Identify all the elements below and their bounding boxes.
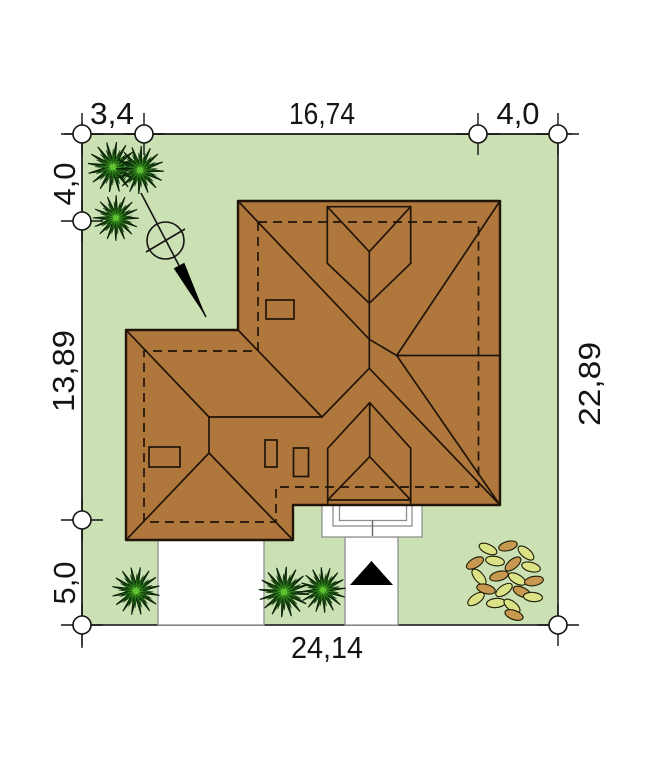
- dim-left-bottom: 5,0: [47, 562, 82, 605]
- driveway: [158, 540, 264, 625]
- dim-bottom-total: 24,14: [291, 630, 363, 665]
- dim-left-top: 4,0: [47, 163, 82, 206]
- site-plan-drawing: 3,4 16,74 4,0 4,0 13,89 5,0 22,89 24,14: [0, 0, 650, 768]
- site-plan-page: 3,4 16,74 4,0 4,0 13,89 5,0 22,89 24,14: [0, 0, 650, 768]
- dim-top-right: 4,0: [497, 96, 540, 131]
- dim-right-side: 22,89: [572, 342, 607, 426]
- dim-top-left: 3,4: [90, 96, 134, 131]
- dim-top-middle: 16,74: [289, 96, 355, 131]
- dim-left-middle: 13,89: [46, 330, 81, 412]
- entrance-steps-inner: [340, 505, 407, 521]
